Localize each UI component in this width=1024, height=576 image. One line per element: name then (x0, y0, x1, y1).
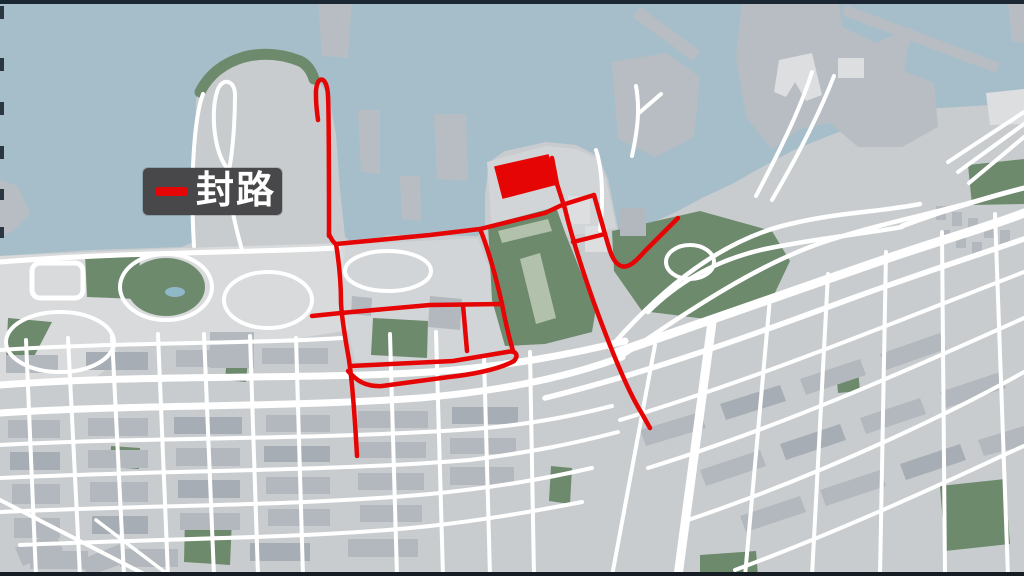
frame-bottom (0, 572, 1024, 576)
building (348, 539, 418, 557)
road-closure-legend: 封路 (143, 168, 282, 215)
pier-top (318, 0, 352, 58)
building (620, 208, 646, 236)
building-right-light (986, 89, 1024, 125)
park-right (968, 159, 1024, 205)
frame-tick (0, 58, 4, 71)
building (10, 452, 60, 470)
frame-top (0, 0, 1024, 4)
frame-tick (0, 102, 4, 115)
park-left-1 (85, 255, 140, 299)
building (12, 484, 60, 504)
building (450, 438, 516, 454)
pier-finger-3 (434, 114, 468, 181)
frame-tick (0, 146, 4, 159)
building (450, 467, 514, 485)
building (268, 509, 330, 526)
building (8, 420, 60, 438)
park-pond (165, 287, 185, 297)
building (356, 442, 426, 458)
pier-finger-1 (358, 110, 380, 174)
building (266, 477, 330, 494)
pier-finger-2 (400, 176, 421, 221)
legend-label: 封路 (196, 171, 276, 209)
map-canvas (0, 0, 1024, 576)
park-quad-block (371, 318, 428, 358)
building (428, 296, 462, 330)
closed-road-swatch (156, 187, 187, 196)
frame-tick (0, 227, 4, 238)
news-map-graphic: 封路 (0, 0, 1024, 576)
pier-building-rect (838, 58, 864, 78)
building (176, 350, 240, 367)
building (360, 505, 422, 522)
frame-tick (0, 189, 4, 200)
building-tiny (952, 212, 962, 226)
park-bottom-right-1 (940, 479, 1010, 551)
building (264, 446, 330, 462)
building (86, 352, 148, 370)
building (358, 473, 424, 490)
frame-tick (0, 6, 4, 19)
